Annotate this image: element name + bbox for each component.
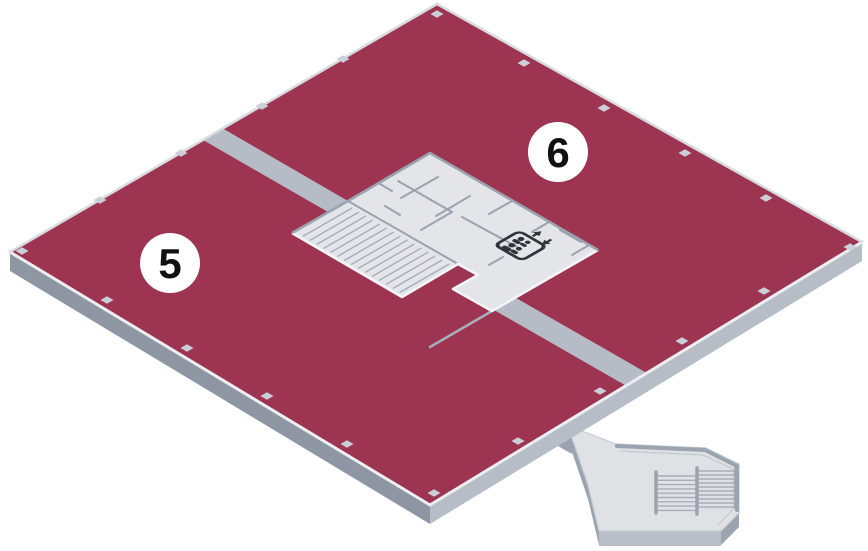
structure-top-face	[564, 424, 739, 531]
marker-5-label: 5	[158, 240, 181, 287]
isometric-floor-map: 5 6	[0, 0, 868, 551]
floor-map-canvas: 5 6	[0, 0, 868, 551]
floor-marker-6[interactable]: 6	[528, 122, 588, 182]
floor-marker-5[interactable]: 5	[140, 233, 200, 293]
structure-bottom-face	[599, 531, 721, 546]
marker-6-label: 6	[546, 129, 569, 176]
